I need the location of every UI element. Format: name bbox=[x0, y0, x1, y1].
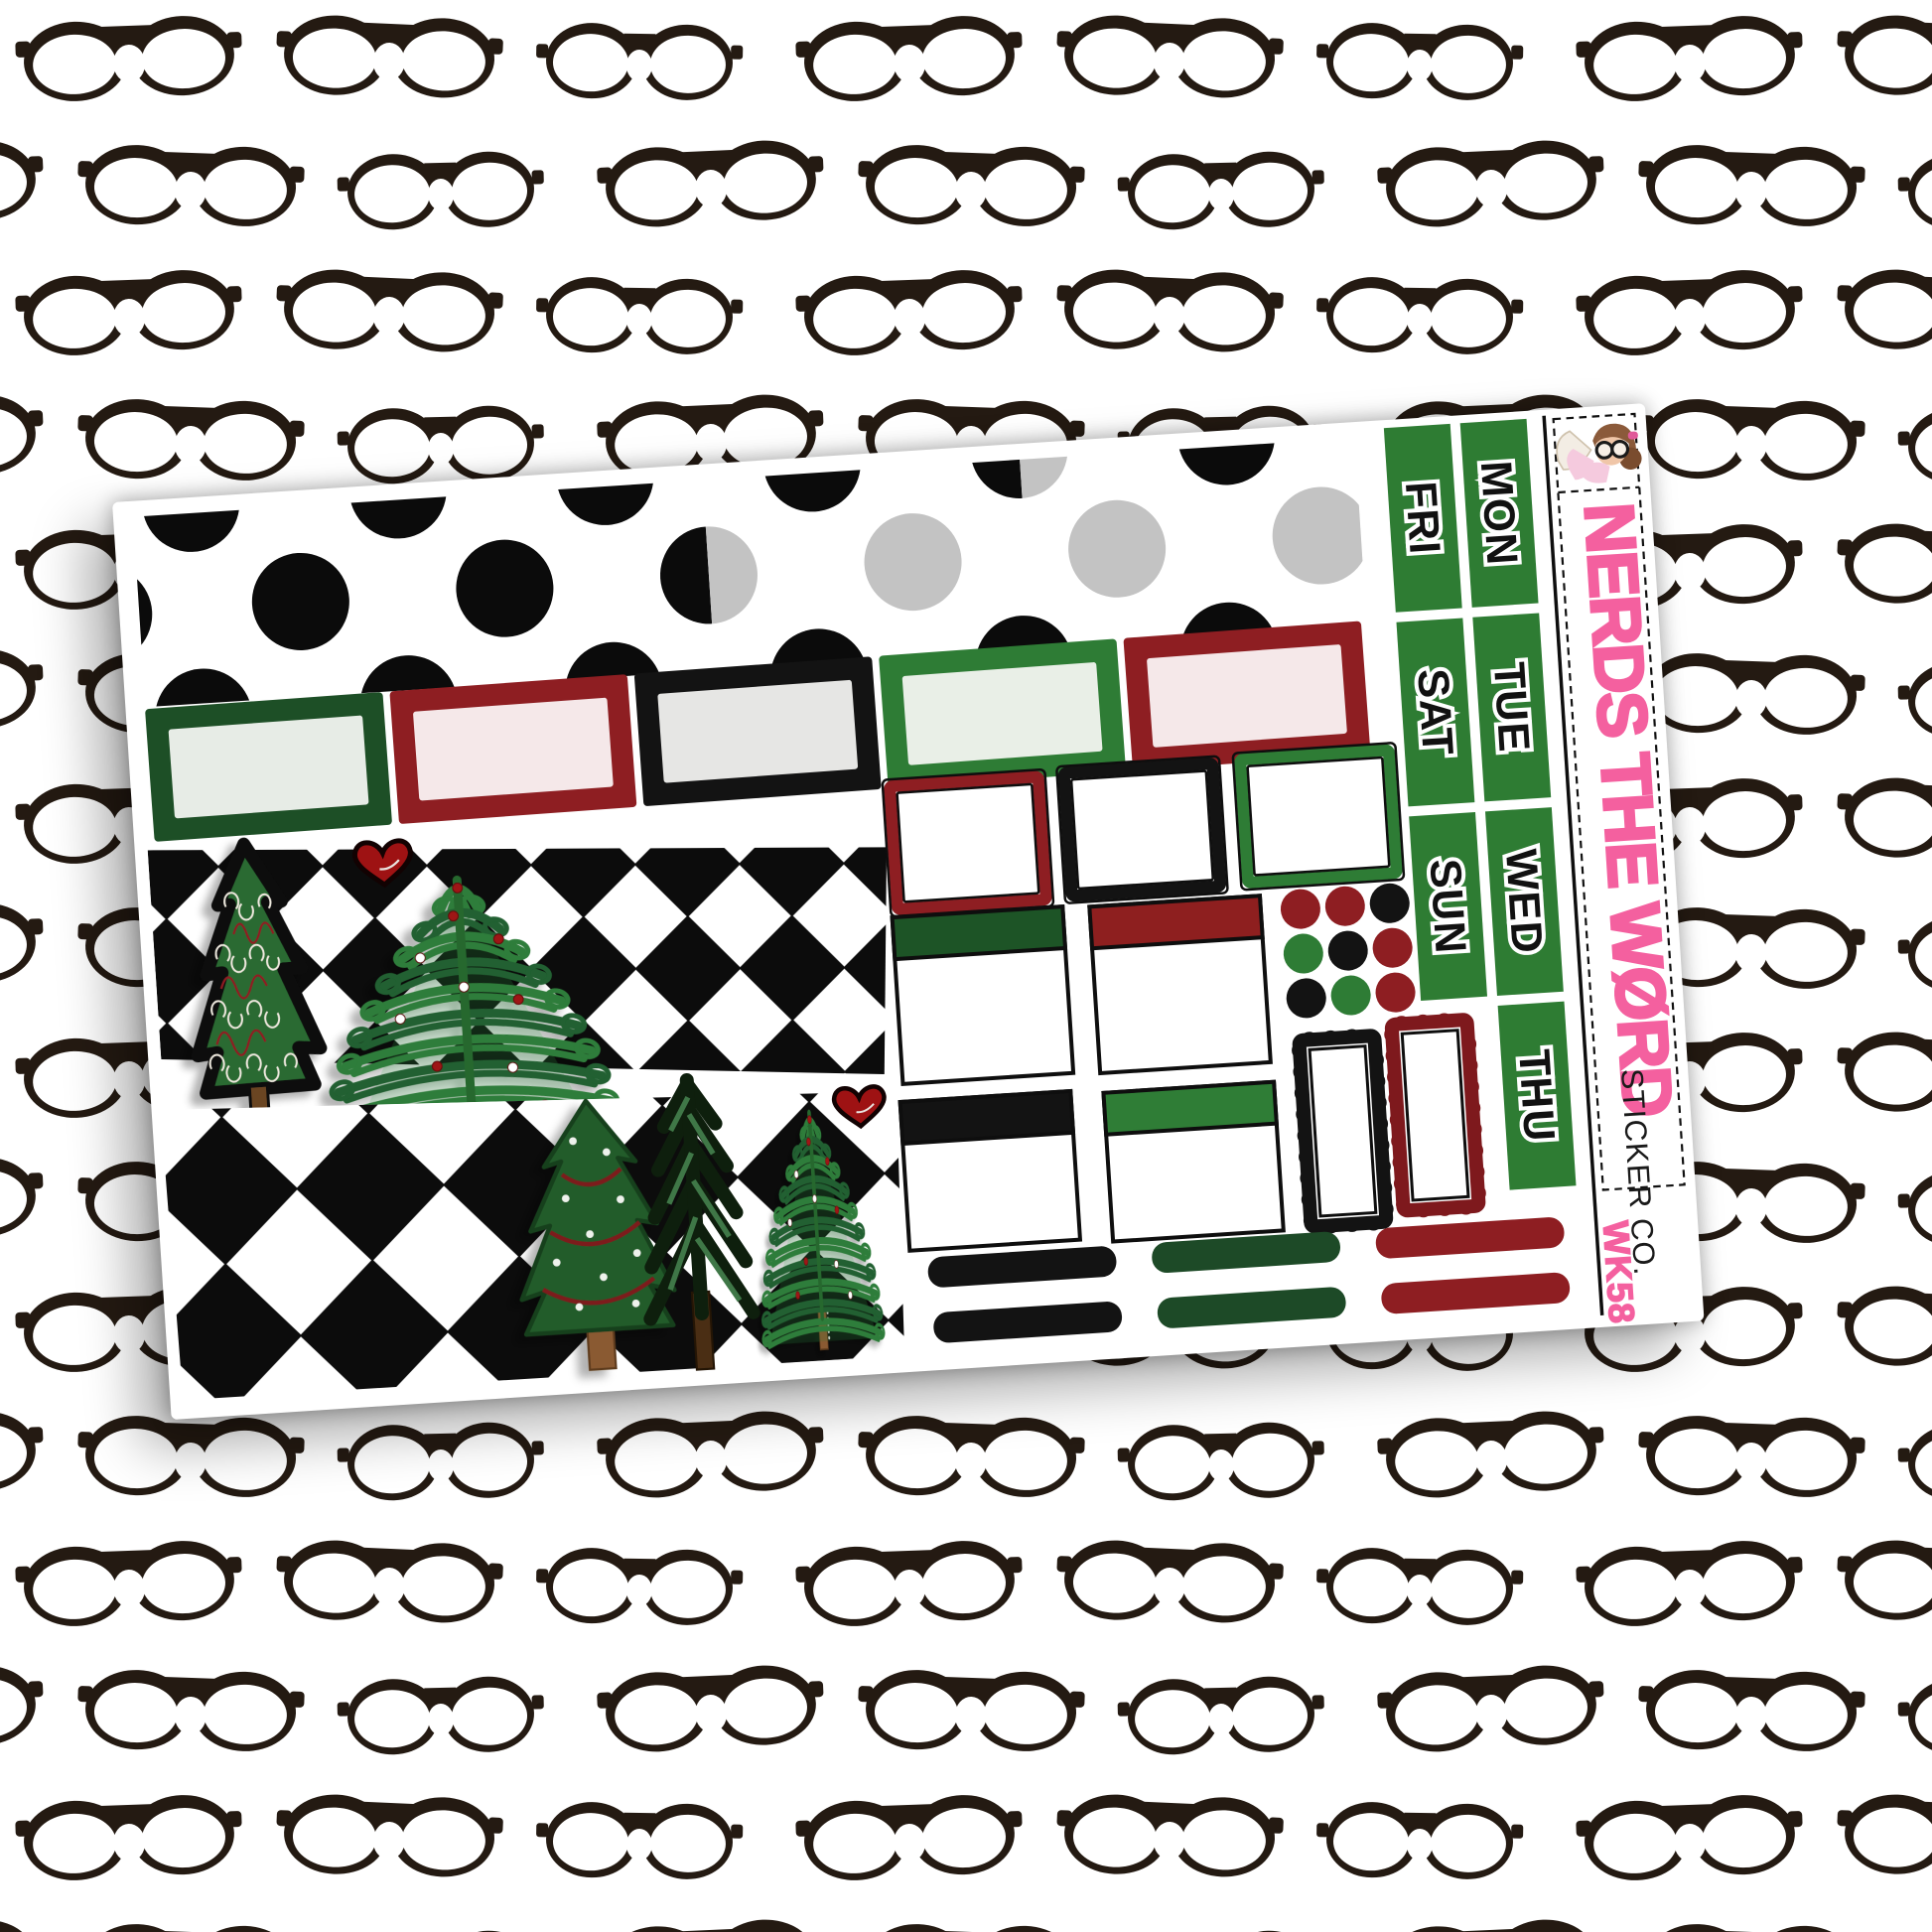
svg-text:MON: MON bbox=[1471, 460, 1527, 568]
svg-text:THU: THU bbox=[1509, 1047, 1564, 1143]
svg-text:TUE: TUE bbox=[1484, 661, 1539, 755]
svg-text:WK58: WK58 bbox=[1595, 1219, 1643, 1324]
svg-text:SUN: SUN bbox=[1421, 858, 1475, 956]
svg-text:SAT: SAT bbox=[1408, 667, 1462, 758]
svg-text:WED: WED bbox=[1496, 848, 1552, 956]
svg-text:FRI: FRI bbox=[1396, 480, 1449, 556]
